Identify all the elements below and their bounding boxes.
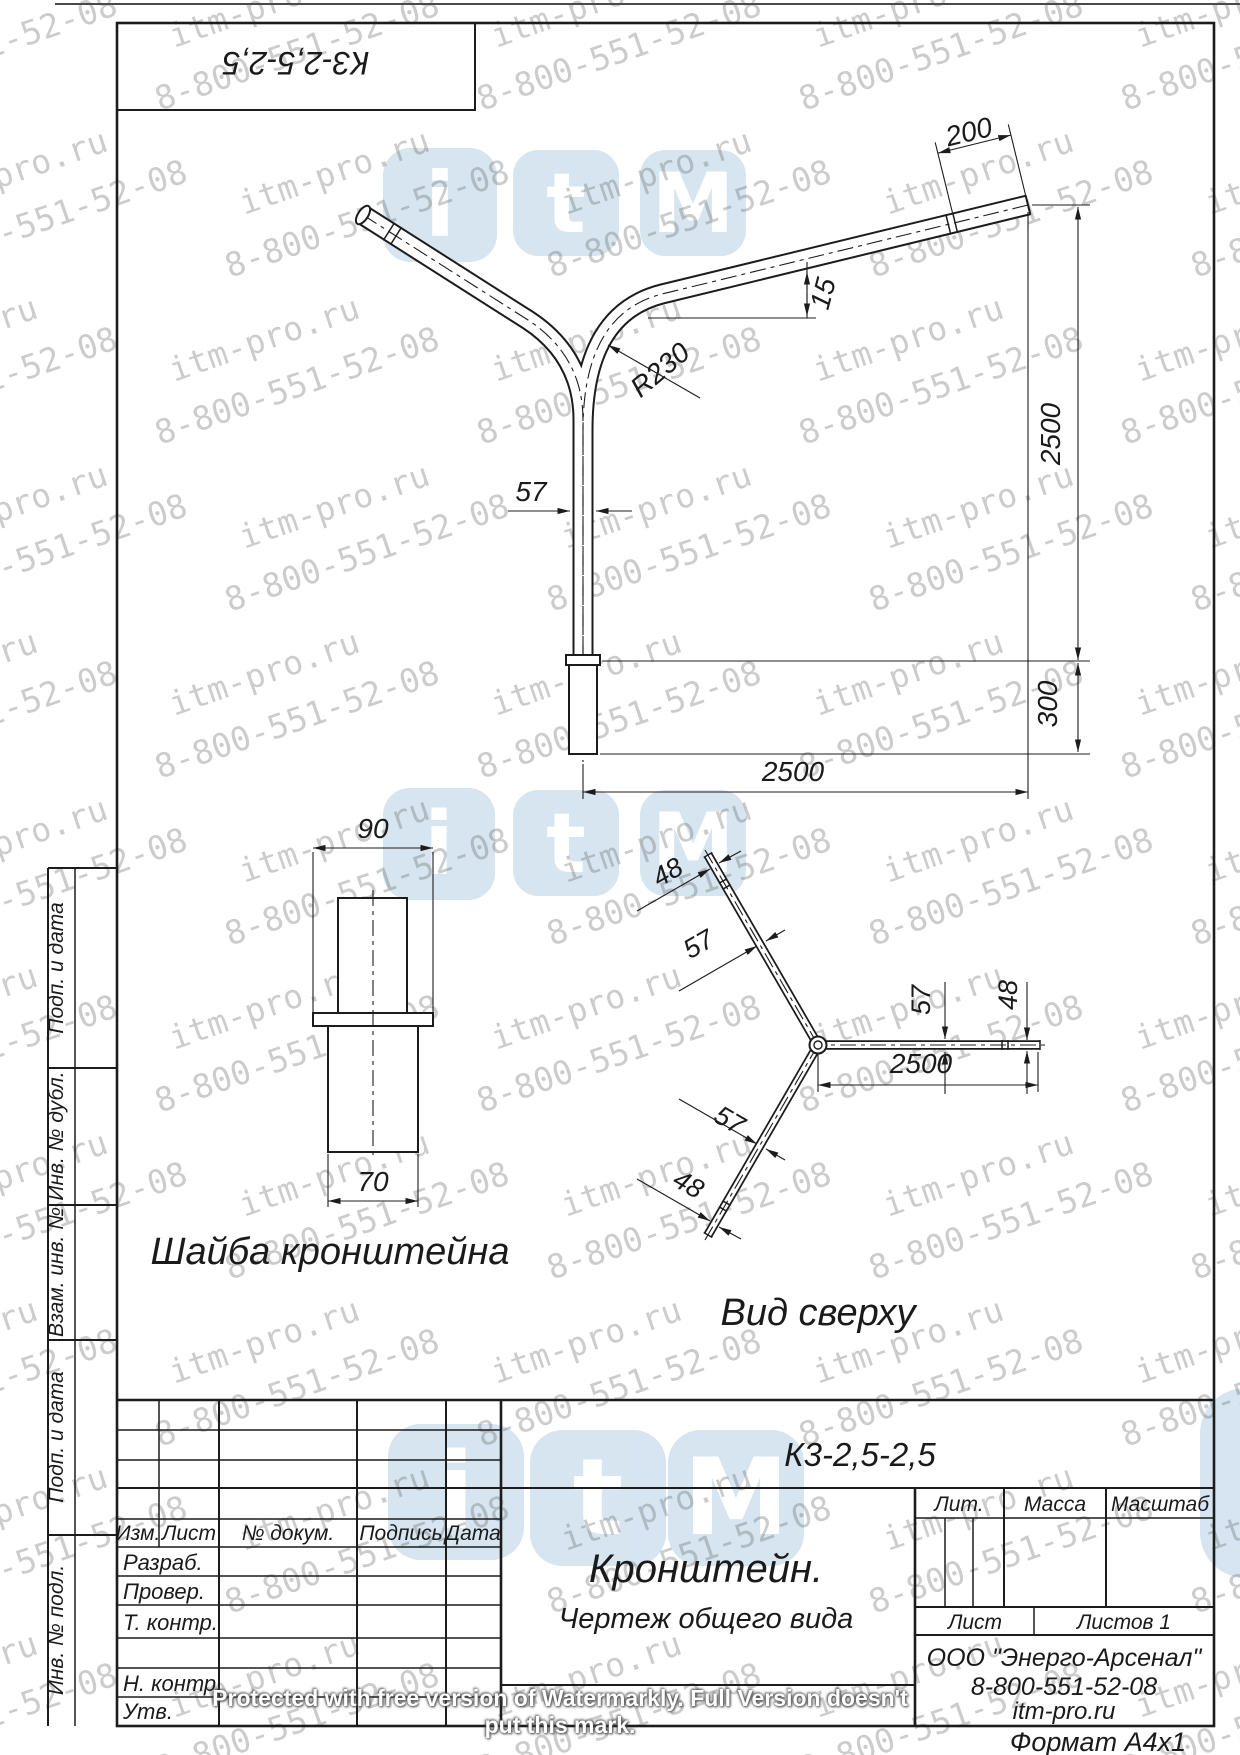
dim-200: 200 <box>941 111 995 153</box>
hdr-masshtab: Масштаб <box>1111 1493 1210 1516</box>
dim-tv-48-upper: 48 <box>647 852 688 893</box>
hdr-lit: Лит. <box>932 1493 983 1516</box>
dim-tv-57-lower: 57 <box>709 1100 751 1141</box>
row-nkontr: Н. контр. <box>123 1671 222 1696</box>
hdr-massa: Масса <box>1024 1493 1086 1516</box>
dim-v2500: 2500 <box>1035 402 1066 466</box>
dim-h2500: 2500 <box>761 756 825 787</box>
col-ndokum: № докум. <box>242 1522 335 1545</box>
doc-designation: К3-2,5-2,5 <box>784 1436 936 1473</box>
side-label-vzam-inv: Взам. инв. № <box>45 1207 68 1337</box>
doc-subtitle: Чертеж общего вида <box>559 1603 854 1635</box>
dim-90: 90 <box>357 813 389 844</box>
drawing-layer: К3-2,5-2,5 Подп. и дата Инв. № дубл. Вза… <box>0 0 1240 1755</box>
dim-tv-2500: 2500 <box>889 1048 953 1079</box>
washer-view <box>313 848 433 1207</box>
dim-57-stem: 57 <box>515 476 548 507</box>
main-view <box>353 195 1030 762</box>
side-label-inv-podl: Инв. № подл. <box>45 1565 68 1695</box>
part-name: Кронштейн. <box>589 1547 823 1591</box>
col-list: Лист <box>160 1522 216 1545</box>
top-view <box>704 850 1046 1240</box>
dim-tv-57-right: 57 <box>906 984 936 1015</box>
top-view-title: Вид сверху <box>720 1292 917 1334</box>
dim-tv-48-lower: 48 <box>668 1164 709 1205</box>
drawing-svg: К3-2,5-2,5 Подп. и дата Инв. № дубл. Вза… <box>0 0 1240 1755</box>
row-utv: Утв. <box>122 1699 173 1724</box>
mount-tube <box>569 665 597 754</box>
hdr-list2: Лист <box>946 1611 1002 1634</box>
title-block-text: К3-2,5-2,5 Кронштейн. Чертеж общего вида… <box>116 1436 1211 1755</box>
dim-tv-48-right: 48 <box>993 980 1023 1010</box>
row-prover: Провер. <box>123 1579 205 1604</box>
dim-15: 15 <box>804 274 842 313</box>
hub-inner <box>814 1041 822 1049</box>
col-data: Дата <box>443 1522 500 1545</box>
side-label-inv-dubl: Инв. № дубл. <box>45 1071 68 1200</box>
dim-v300: 300 <box>1032 680 1063 727</box>
col-izm: Изм. <box>116 1522 161 1545</box>
hdr-listov: Листов 1 <box>1075 1611 1171 1634</box>
dim-70: 70 <box>357 1166 389 1197</box>
row-tkontr: Т. контр. <box>123 1610 218 1635</box>
side-label-podp-data-2: Подп. и дата <box>45 1371 68 1502</box>
company-phone: 8-800-551-52-08 <box>971 1673 1157 1701</box>
washer-view-title: Шайба кронштейна <box>151 1231 510 1273</box>
dim-r230: R230 <box>624 336 696 403</box>
row-razrab: Разраб. <box>123 1550 203 1575</box>
stamp-designation: К3-2,5-2,5 <box>222 45 369 81</box>
side-label-podp-data-1: Подп. и дата <box>45 902 68 1033</box>
col-podpis: Подпись <box>359 1522 442 1545</box>
format-label: Формат А4х1 <box>1010 1727 1186 1755</box>
page: itMitMitM itm-pro.ru8-800-551-52-08itm-p… <box>0 0 1240 1755</box>
washer-flange <box>566 655 600 665</box>
dim-tv-57-upper: 57 <box>678 923 720 964</box>
company-site: itm-pro.ru <box>1013 1698 1116 1725</box>
company-name: ООО "Энерго-Арсенал" <box>927 1644 1203 1672</box>
